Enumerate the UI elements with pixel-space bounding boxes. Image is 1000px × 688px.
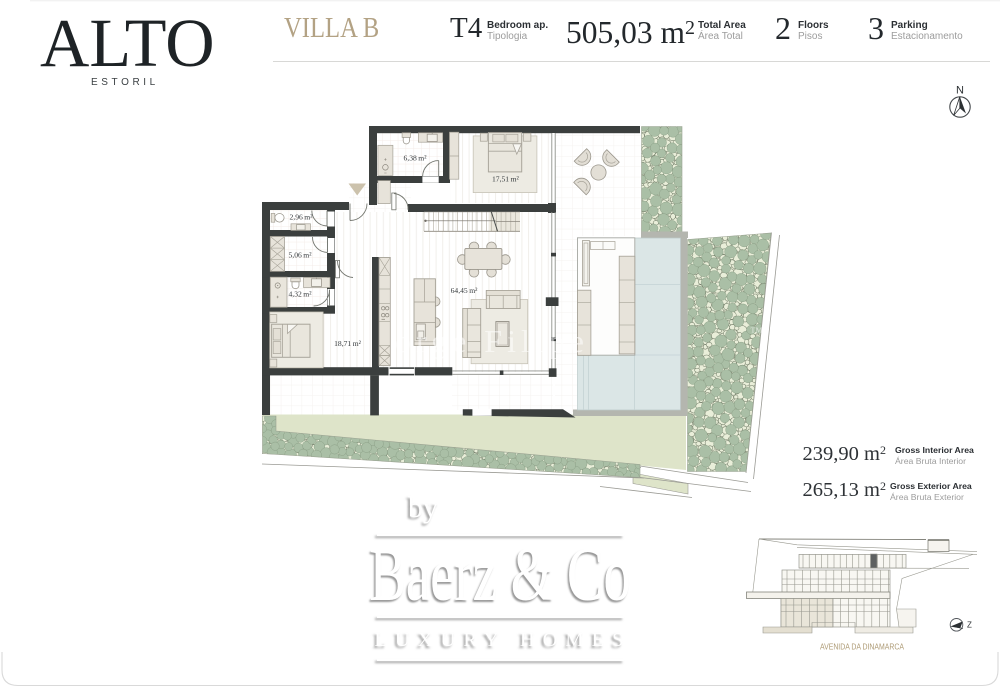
svg-text:Z: Z <box>967 621 972 630</box>
svg-text:2,96 m²: 2,96 m² <box>290 213 314 222</box>
svg-text:4,32 m²: 4,32 m² <box>289 290 313 299</box>
svg-text:AVENIDA DA DINAMARCA: AVENIDA DA DINAMARCA <box>820 643 905 652</box>
svg-text:18,71 m²: 18,71 m² <box>334 339 362 348</box>
svg-text:orge Filipe: orge Filipe <box>395 323 589 359</box>
svg-text:6,38 m²: 6,38 m² <box>404 154 428 163</box>
svg-text:5,06 m²: 5,06 m² <box>289 251 313 260</box>
svg-text:17,51 m²: 17,51 m² <box>492 175 520 184</box>
svg-text:N: N <box>956 85 964 97</box>
svg-text:™: ™ <box>750 324 763 339</box>
svg-text:64,45 m²: 64,45 m² <box>451 286 479 295</box>
